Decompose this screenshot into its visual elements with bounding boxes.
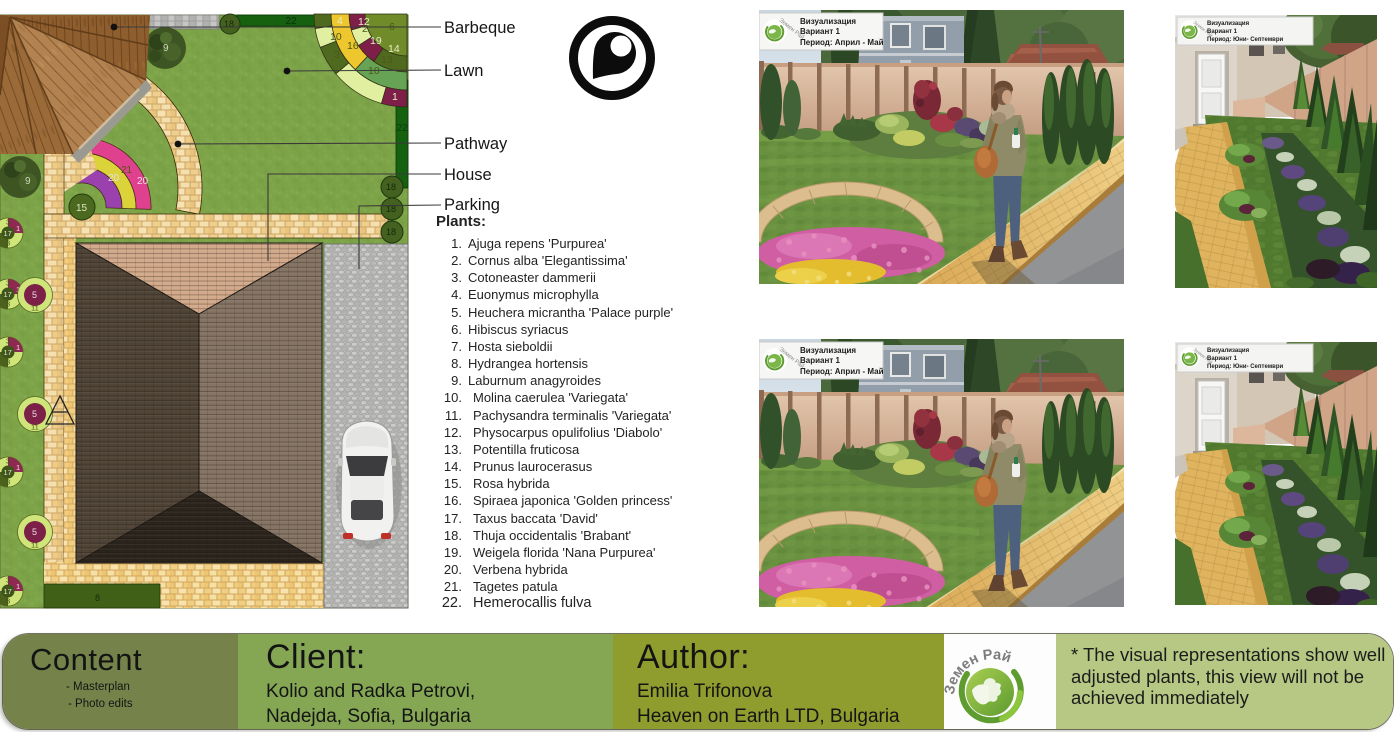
svg-text:15: 15 (76, 203, 88, 214)
svg-text:16: 16 (347, 40, 359, 52)
svg-text:17: 17 (4, 229, 12, 238)
svg-text:22: 22 (396, 123, 408, 134)
svg-text:5: 5 (32, 290, 37, 300)
svg-text:22: 22 (285, 16, 297, 27)
svg-text:House: House (444, 166, 492, 184)
svg-text:20: 20 (137, 176, 149, 187)
svg-text:9: 9 (25, 176, 31, 187)
svg-text:Lawn: Lawn (444, 62, 483, 80)
svg-text:13: 13 (381, 54, 393, 66)
svg-text:21: 21 (121, 165, 133, 176)
svg-text:18: 18 (386, 182, 396, 192)
svg-text:8: 8 (95, 593, 100, 603)
svg-text:9: 9 (163, 43, 169, 54)
svg-text:1: 1 (16, 224, 20, 233)
svg-text:Barbeque: Barbeque (444, 19, 516, 37)
svg-text:11: 11 (31, 304, 39, 313)
svg-text:3: 3 (6, 218, 10, 227)
svg-text:2: 2 (362, 23, 368, 35)
svg-text:1: 1 (392, 91, 398, 103)
svg-text:Pathway: Pathway (444, 135, 508, 153)
svg-text:4: 4 (337, 15, 343, 27)
svg-text:20: 20 (108, 173, 120, 184)
svg-text:3: 3 (6, 239, 10, 248)
svg-text:10: 10 (330, 31, 342, 43)
svg-text:Parking: Parking (444, 196, 500, 214)
svg-text:18: 18 (386, 227, 396, 237)
svg-text:19: 19 (370, 35, 382, 47)
svg-text:3: 3 (334, 49, 340, 61)
